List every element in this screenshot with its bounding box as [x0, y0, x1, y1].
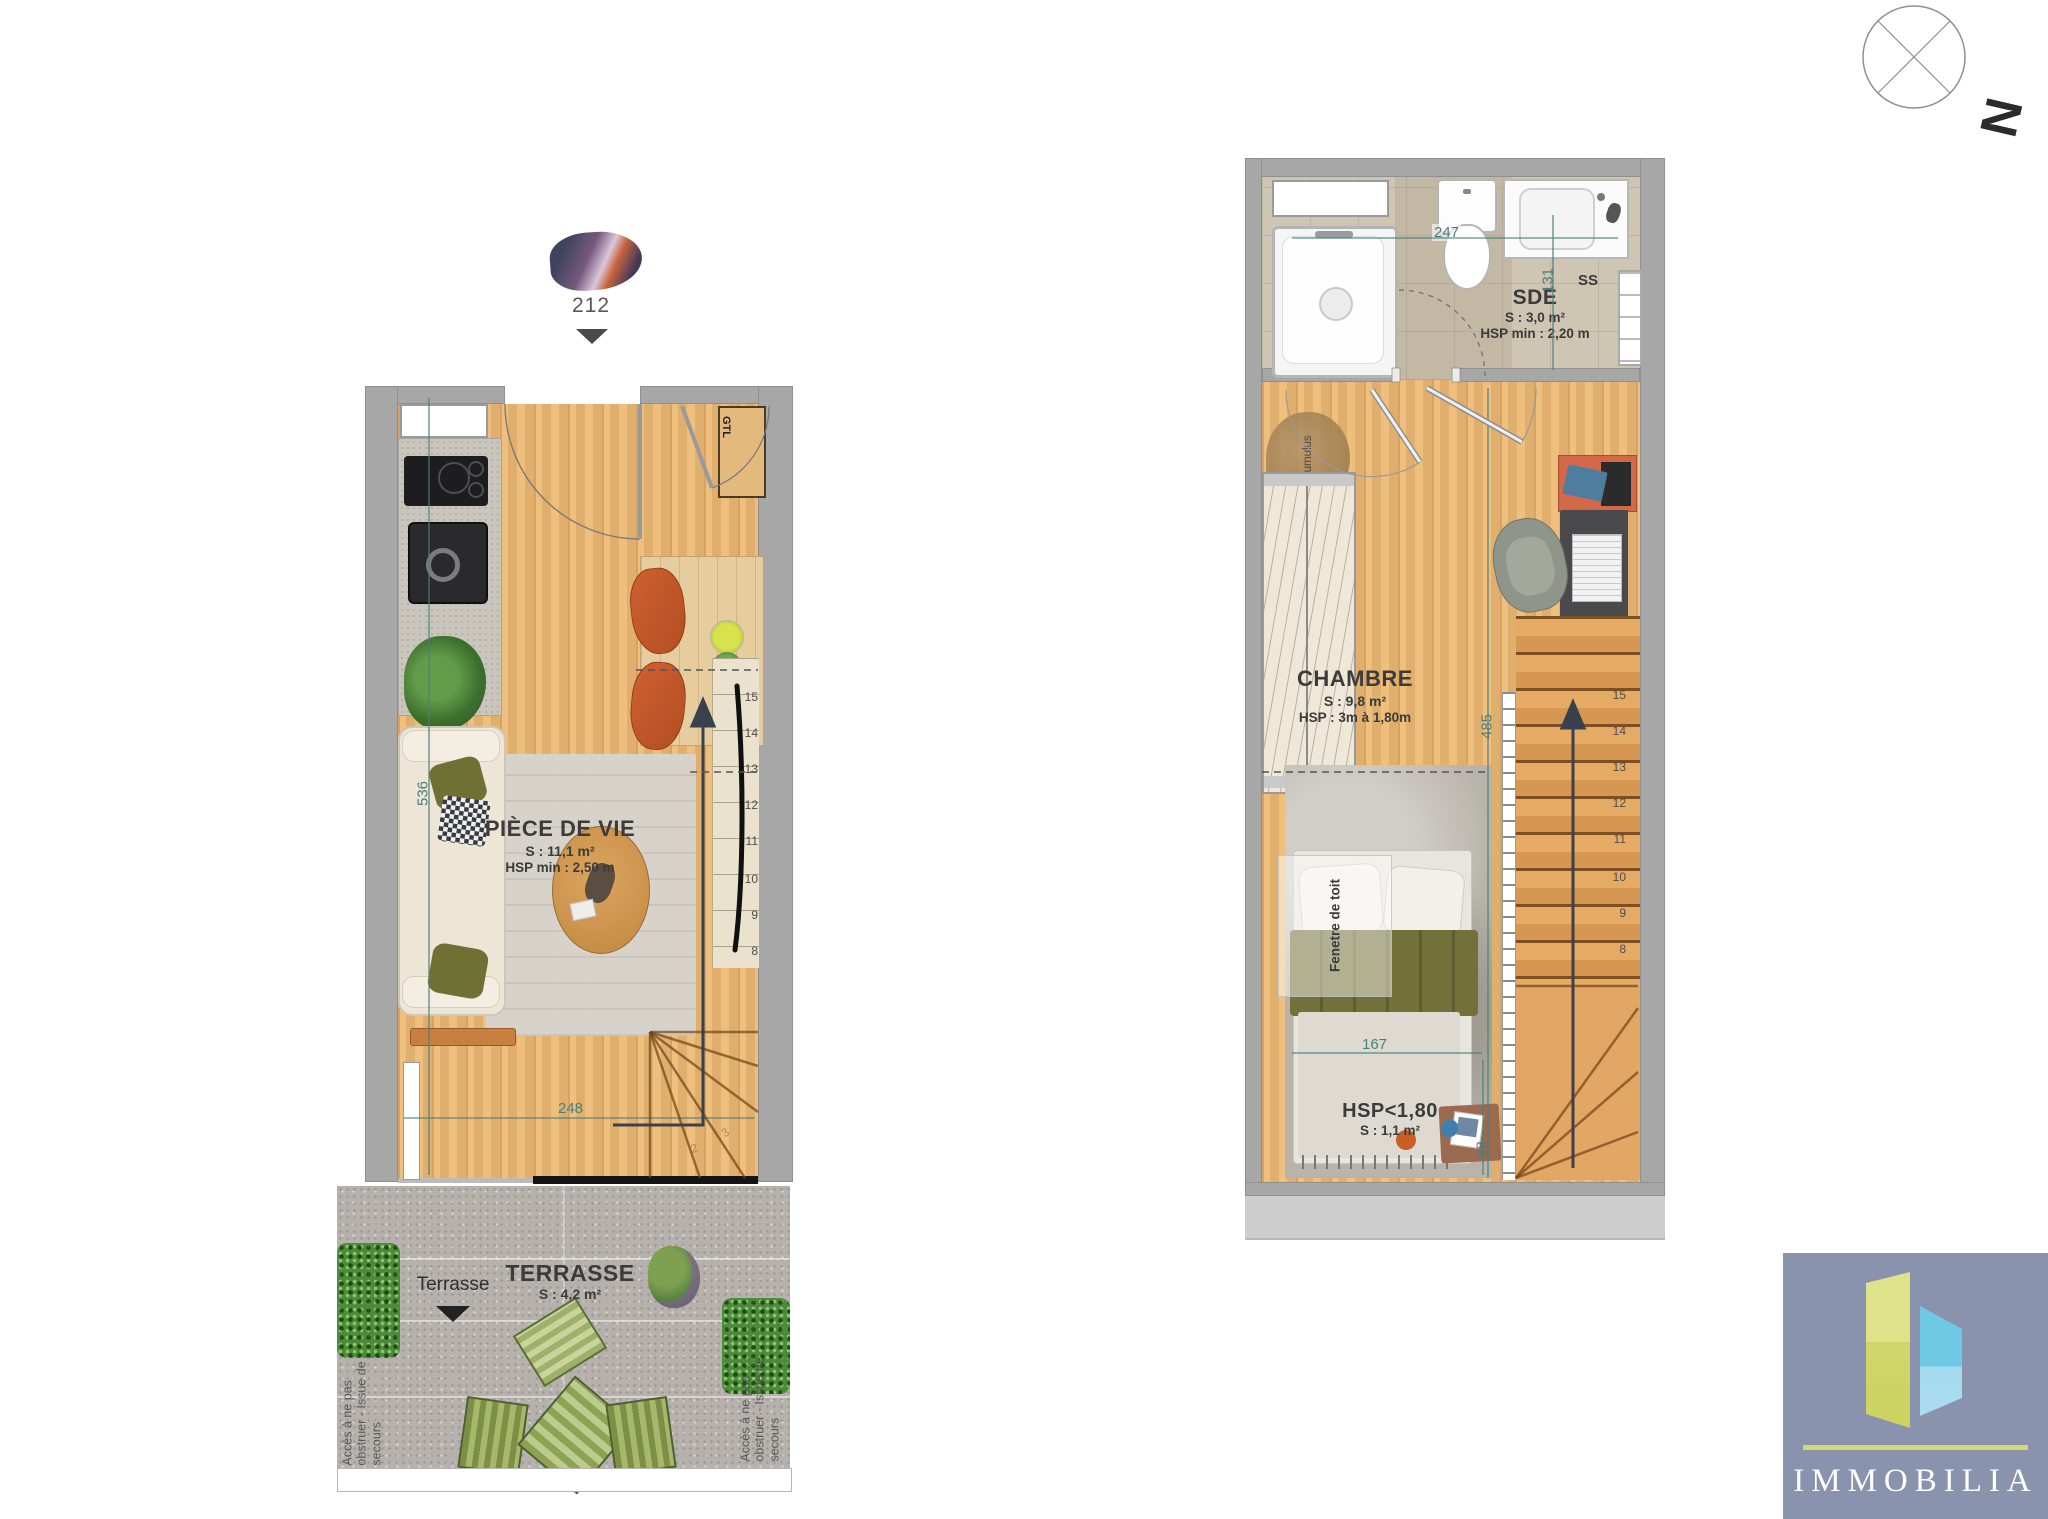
- desk-shelf: [1558, 455, 1637, 512]
- floorplan-sheet: 212 GTL 15 14 13 12 1: [0, 0, 2048, 1519]
- sliding-bay-window: [533, 1176, 758, 1184]
- cushion-olive: [426, 942, 490, 1001]
- dimension-485: 485: [1479, 707, 1496, 747]
- shower-head: [1315, 231, 1353, 238]
- flower-bush: [648, 1246, 700, 1308]
- stair-step-number: 13: [1604, 760, 1626, 774]
- compass-north-label: N: [1962, 92, 2034, 164]
- garden-chair: [457, 1396, 528, 1476]
- dimension-131: 131: [1540, 261, 1557, 301]
- laptop: [1572, 534, 1622, 602]
- plan-linework: [0, 0, 2048, 1519]
- room-area: S : 9,8 m²: [1265, 693, 1445, 710]
- terrace-pointer-icon: [436, 1306, 470, 1322]
- pillow: [1382, 865, 1466, 940]
- room-label-low-ceiling: HSP<1,80 S : 1,1 m²: [1320, 1100, 1460, 1139]
- stair-step-number: 8: [1604, 942, 1626, 956]
- monitor: [1601, 462, 1631, 506]
- shelf: [410, 1028, 516, 1046]
- terrace-edge: [337, 1468, 792, 1492]
- room-title: PIÈCE DE VIE: [460, 816, 660, 841]
- dimension-167: 167: [1362, 1036, 1387, 1053]
- towel-radiator: [1618, 270, 1642, 366]
- flush-button: [1463, 189, 1471, 194]
- faucet: [1597, 193, 1605, 201]
- terrace-pointer-label: Terrasse: [408, 1274, 498, 1296]
- garden-chair: [605, 1396, 676, 1476]
- stair-step-number: 9: [1604, 906, 1626, 920]
- room-area: S : 1,1 m²: [1320, 1123, 1460, 1139]
- stair-step-number: 8: [736, 944, 758, 958]
- room-title: TERRASSE: [490, 1260, 650, 1286]
- stair-step-number: 15: [1604, 688, 1626, 702]
- stair-railing: [1502, 692, 1516, 1180]
- desk: [1560, 510, 1628, 620]
- room-title: HSP<1,80: [1320, 1100, 1460, 1123]
- kitchen-sink: [408, 522, 488, 604]
- faucet: [426, 548, 460, 582]
- stair-step-number: 10: [736, 872, 758, 886]
- window: [400, 404, 488, 438]
- room-title: SDE: [1455, 286, 1615, 310]
- wall: [1245, 158, 1262, 1196]
- roof-window-overlay: Fenetre de toit: [1278, 855, 1392, 997]
- burner: [468, 482, 484, 498]
- cooktop: [404, 456, 488, 506]
- compass-icon: [1863, 6, 1965, 108]
- wall: [1245, 1182, 1665, 1196]
- room-title: CHAMBRE: [1265, 666, 1445, 691]
- access-note: Accès à ne pas obstruer - Issue de secou…: [738, 1344, 781, 1462]
- room-label-terrace: TERRASSE S : 4,2 m²: [490, 1260, 650, 1303]
- staircase-winders: [1516, 986, 1640, 1180]
- logo-wordmark: IMMOBILIA: [1783, 1463, 2048, 1500]
- wardrobe-rail: [1306, 486, 1308, 776]
- agency-logo: IMMOBILIA: [1783, 1253, 2048, 1519]
- stair-step-number: 10: [1604, 870, 1626, 884]
- room-ceiling: HSP : 3m à 1,80m: [1265, 710, 1445, 726]
- soap-accessory: [1604, 201, 1623, 224]
- stair-step-number: 12: [736, 798, 758, 812]
- fruit-bowl: [710, 620, 744, 654]
- gtl-duct: GTL: [718, 406, 766, 498]
- burner: [468, 461, 484, 477]
- dimension-248: 248: [558, 1100, 583, 1117]
- wall: [1640, 158, 1665, 1196]
- unit-number: 212: [545, 294, 637, 318]
- wall: [365, 386, 398, 1182]
- stair-step-number: 15: [736, 690, 758, 704]
- room-area: S : 3,0 m²: [1455, 310, 1615, 326]
- unit-photo-thumbnail: [548, 229, 644, 293]
- room-area: S : 4,2 m²: [490, 1286, 650, 1303]
- basin: [1519, 188, 1595, 250]
- french-door-leaf: [403, 1062, 420, 1180]
- window: [1272, 180, 1389, 217]
- wall: [1245, 158, 1665, 177]
- washbasin: [1503, 179, 1629, 259]
- stair-step-number: 14: [736, 726, 758, 740]
- roof-strip: [1245, 1196, 1665, 1240]
- stair-step-number: 12: [1604, 796, 1626, 810]
- shower: [1272, 226, 1398, 378]
- wall: [1452, 368, 1640, 382]
- bed-fringe: [1302, 1155, 1458, 1169]
- hedge: [337, 1243, 400, 1358]
- room-ceiling: HSP min : 2,50 m: [460, 860, 660, 876]
- dimension-536: 536: [415, 774, 432, 814]
- room-label-living: PIÈCE DE VIE S : 11,1 m² HSP min : 2,50 …: [460, 816, 660, 876]
- dimension-247: 247: [1432, 224, 1461, 241]
- stair-step-number: 13: [736, 762, 758, 776]
- unit-pointer-icon: [576, 329, 608, 344]
- roof-window-label: Fenetre de toit: [1328, 864, 1343, 988]
- wardrobe: [1262, 472, 1356, 794]
- shower-drain: [1319, 287, 1353, 321]
- room-area: S : 11,1 m²: [460, 843, 660, 860]
- burner: [438, 462, 470, 494]
- stair-step-number: 14: [1604, 724, 1626, 738]
- table-decor: [569, 899, 596, 922]
- stair-step-number: 9: [736, 908, 758, 922]
- sofa-armrest: [402, 730, 500, 762]
- room-label-bathroom: SDE S : 3,0 m² HSP min : 2,20 m: [1455, 286, 1615, 343]
- stair-step-number: 11: [1604, 832, 1626, 846]
- chair-seat: [1502, 533, 1559, 599]
- access-note: Accès à ne pas obstruer - Issue de secou…: [340, 1348, 383, 1466]
- wardrobe-cap: [1264, 474, 1354, 486]
- wall: [758, 386, 793, 1182]
- stair-step-number: 11: [736, 834, 758, 848]
- gtl-label: GTL: [720, 416, 732, 438]
- room-ceiling: HSP min : 2,20 m: [1455, 326, 1615, 342]
- room-label-bedroom: CHAMBRE S : 9,8 m² HSP : 3m à 1,80m: [1265, 666, 1445, 726]
- dimension-68: 68: [1474, 1130, 1491, 1170]
